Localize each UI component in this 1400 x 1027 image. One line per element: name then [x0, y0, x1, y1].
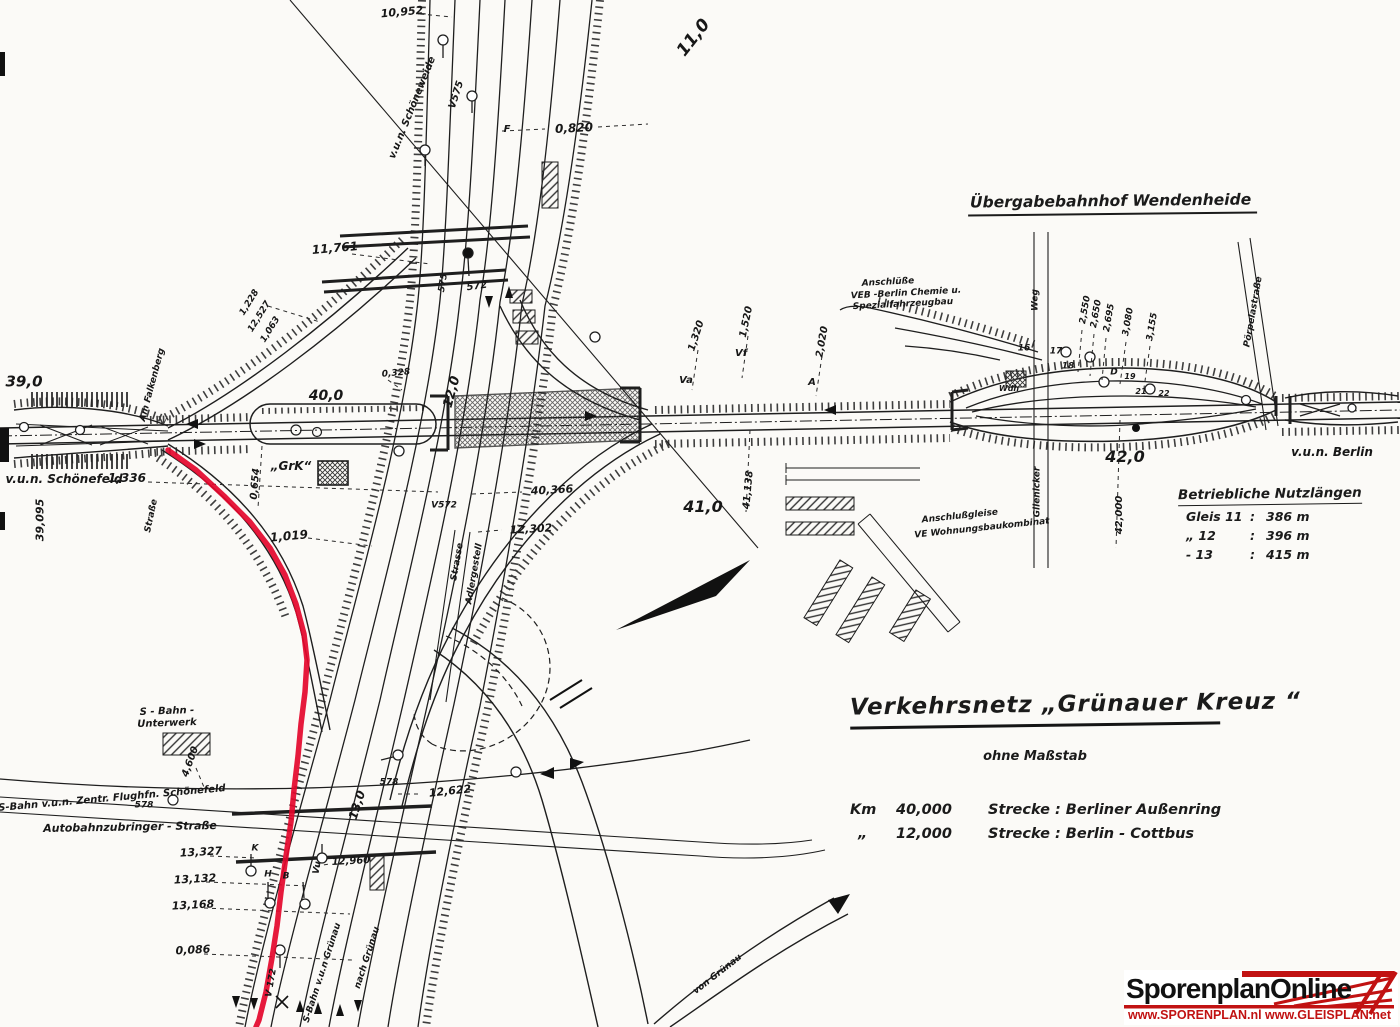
map-label: 1,336 [108, 472, 146, 484]
length-value: 386 m [1266, 509, 1326, 524]
map-label: Weg [1032, 289, 1041, 311]
map-label: K [252, 845, 259, 854]
separator: : [1250, 547, 1266, 562]
separator: : [1250, 528, 1266, 543]
map-label: 578 [380, 779, 399, 788]
map-label: 12,302 [510, 522, 553, 535]
map-label: Unterwerk [137, 718, 197, 730]
map-label: 41,0 [683, 499, 722, 515]
map-label: 39,0 [5, 375, 42, 390]
map-label: 578 [135, 802, 154, 811]
map-label: Vf [735, 349, 747, 359]
nutzlaengen-block: Betriebliche Nutzlängen Gleis 11 : 386 m… [1178, 486, 1362, 562]
km-row: Km 40,000 Strecke : Berliner Außenring [850, 802, 1220, 818]
map-label: v.u.n. Berlin [1291, 446, 1373, 458]
nutzlaengen-row: Gleis 11 : 386 m [1178, 509, 1362, 524]
map-label: 12,960 [331, 856, 370, 868]
map-label: „GrK“ [271, 460, 312, 472]
map-label: 16 [1018, 345, 1031, 354]
map-label: Wdh [999, 385, 1019, 393]
title-block: Verkehrsnetz „Grünauer Kreuz “ ohne Maßs… [850, 692, 1220, 850]
gleis-label: Gleis 11 [1186, 509, 1250, 524]
km-label: „ [850, 826, 896, 842]
map-label: D [1110, 369, 1117, 378]
map-label: 42,0 [1105, 449, 1144, 465]
map-label: H [264, 871, 272, 880]
logo-urls: www.SPORENPLAN.nl www.GLEISPLAN.net [1128, 1008, 1391, 1022]
map-label: 42,000 [1115, 496, 1125, 535]
map-label: 40,366 [531, 483, 574, 496]
map-label: Glienicker [1034, 467, 1043, 518]
gleis-label: „ 12 [1186, 528, 1250, 543]
km-row: „ 12,000 Strecke : Berlin - Cottbus [850, 826, 1220, 842]
length-value: 415 m [1266, 547, 1326, 562]
map-label: 39,095 [35, 499, 46, 541]
station-title-wendenheide: Übergabebahnhof Wendenheide [968, 190, 1257, 216]
logo-wordmark: SporenplanOnline [1126, 973, 1351, 1005]
map-label: 0,086 [175, 944, 210, 957]
map-label: V572 [431, 502, 457, 511]
nutzlaengen-row: „ 12 : 396 m [1178, 528, 1362, 543]
map-label: F [504, 125, 511, 135]
map-label: 13,168 [172, 898, 215, 911]
map-label: 18 [1062, 363, 1075, 372]
map-label: 13,132 [174, 872, 217, 885]
strecke-value: Strecke : Berliner Außenring [988, 802, 1221, 818]
map-label: 22 [1158, 390, 1169, 398]
plan-title: Verkehrsnetz „Grünauer Kreuz “ [850, 689, 1220, 729]
plan-subtitle: ohne Maßstab [850, 749, 1220, 764]
sporenplan-logo[interactable]: SporenplanOnline www.SPORENPLAN.nl www.G… [1124, 970, 1398, 1025]
map-label: Va [679, 376, 693, 386]
length-value: 396 m [1266, 528, 1326, 543]
nutzlaengen-row: - 13 : 415 m [1178, 547, 1362, 562]
map-label: v.u.n. Schönefeld [5, 473, 122, 485]
map-label: 21 [1135, 388, 1146, 396]
separator: : [1250, 509, 1266, 524]
km-table: Km 40,000 Strecke : Berliner Außenring „… [850, 802, 1220, 842]
map-label: B [283, 873, 290, 882]
map-label: 1,019 [270, 528, 309, 543]
map-label: 19 [1124, 373, 1135, 381]
map-label: 0,820 [555, 121, 594, 135]
km-label: Km [850, 802, 896, 818]
map-label: 17 [1050, 348, 1063, 357]
gleisplan-gruenauer-kreuz: 10,952v.u.n. SchöneweideV57511,0F0,82011… [0, 0, 1400, 1027]
map-label: A [808, 378, 816, 388]
map-label: 13,327 [180, 845, 223, 858]
map-label: 10,952 [380, 5, 423, 20]
map-label: 40,0 [309, 389, 344, 403]
map-label: Autobahnzubringer - Straße [43, 820, 217, 834]
map-label: S - Bahn - [140, 706, 195, 718]
km-value: 12,000 [896, 826, 988, 842]
gleis-label: - 13 [1186, 547, 1250, 562]
nutzlaengen-heading: Betriebliche Nutzlängen [1178, 485, 1362, 507]
km-value: 40,000 [896, 802, 988, 818]
strecke-value: Strecke : Berlin - Cottbus [988, 826, 1220, 842]
